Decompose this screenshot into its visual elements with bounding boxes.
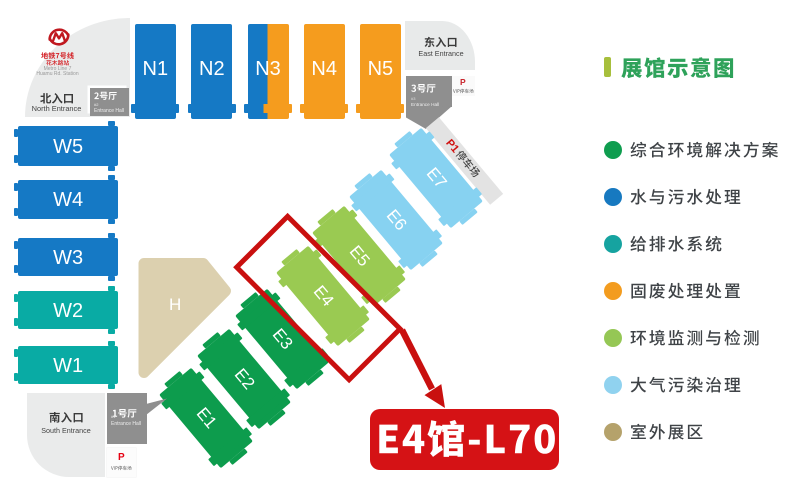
svg-text:H: H (169, 295, 181, 314)
